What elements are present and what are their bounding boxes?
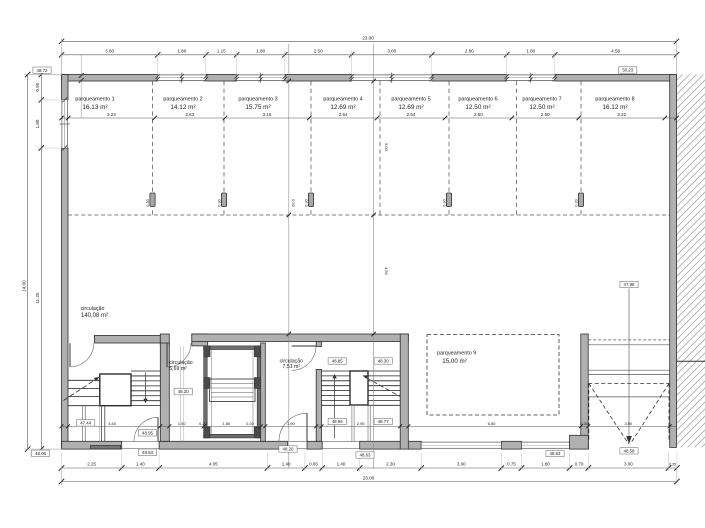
svg-text:23.00: 23.00 [362, 35, 374, 40]
svg-text:1.15: 1.15 [217, 49, 226, 54]
svg-text:140,08 m²: 140,08 m² [81, 313, 108, 319]
svg-text:parqueamento 6: parqueamento 6 [458, 97, 497, 103]
svg-text:16.12 m²: 16.12 m² [602, 104, 627, 111]
svg-text:6.50: 6.50 [488, 421, 497, 426]
svg-text:2.80: 2.80 [465, 49, 474, 54]
svg-text:2.30: 2.30 [386, 462, 395, 467]
svg-text:48.72: 48.72 [37, 68, 49, 73]
svg-text:23.00: 23.00 [363, 476, 375, 481]
svg-text:48.20: 48.20 [178, 389, 190, 394]
svg-text:16.13 m²: 16.13 m² [82, 104, 107, 111]
svg-text:47.44: 47.44 [80, 421, 92, 426]
svg-text:1.40: 1.40 [337, 462, 346, 467]
svg-text:12.69 m²: 12.69 m² [398, 104, 423, 111]
svg-text:14.12 m²: 14.12 m² [170, 104, 195, 111]
svg-text:2.25: 2.25 [87, 462, 96, 467]
svg-text:parqueamento 2: parqueamento 2 [163, 97, 202, 103]
svg-text:3.00: 3.00 [625, 421, 634, 426]
svg-text:1.80: 1.80 [35, 119, 40, 128]
svg-text:12.69 m²: 12.69 m² [330, 104, 355, 111]
svg-text:circulação: circulação [81, 306, 105, 312]
svg-text:1.80: 1.80 [256, 49, 265, 54]
svg-text:15,00 m²: 15,00 m² [442, 358, 466, 365]
svg-text:48.96: 48.96 [332, 419, 344, 424]
svg-text:12.50 m²: 12.50 m² [529, 104, 554, 111]
svg-text:parqueamento 8: parqueamento 8 [595, 97, 634, 103]
svg-text:4.05: 4.05 [209, 462, 218, 467]
svg-text:0.20: 0.20 [199, 421, 208, 426]
svg-text:3.00: 3.00 [624, 462, 633, 467]
svg-text:48.06: 48.06 [35, 451, 47, 456]
svg-text:47.98: 47.98 [624, 282, 636, 287]
svg-text:48.58: 48.58 [624, 448, 636, 453]
svg-text:3.45: 3.45 [108, 421, 117, 426]
svg-text:parqueamento 1: parqueamento 1 [75, 97, 114, 103]
svg-text:parqueamento 3: parqueamento 3 [238, 97, 277, 103]
svg-text:0.30: 0.30 [291, 199, 296, 208]
svg-text:0.30: 0.30 [218, 199, 222, 206]
svg-text:1.90: 1.90 [287, 421, 296, 426]
svg-text:11.25: 11.25 [35, 292, 40, 303]
svg-text:3.60: 3.60 [105, 49, 114, 54]
svg-text:15.75 m²: 15.75 m² [245, 104, 270, 111]
svg-text:1.40: 1.40 [136, 462, 145, 467]
svg-text:3.00: 3.00 [387, 49, 396, 54]
svg-text:50.23: 50.23 [622, 68, 634, 73]
svg-text:0.30: 0.30 [146, 199, 150, 206]
svg-text:4.58: 4.58 [611, 49, 620, 54]
svg-text:48.63: 48.63 [142, 450, 154, 455]
svg-text:5.00: 5.00 [384, 143, 389, 152]
svg-text:parqueamento 7: parqueamento 7 [522, 97, 561, 103]
svg-text:0.30: 0.30 [443, 199, 447, 206]
svg-text:1.80: 1.80 [526, 49, 535, 54]
svg-text:3.23: 3.23 [107, 112, 116, 117]
svg-text:2.63: 2.63 [185, 112, 194, 117]
svg-text:2.54: 2.54 [407, 112, 416, 117]
svg-text:0.20: 0.20 [246, 421, 255, 426]
svg-text:1.80: 1.80 [541, 462, 550, 467]
svg-text:3.22: 3.22 [617, 112, 626, 117]
svg-text:parqueamento 5: parqueamento 5 [391, 97, 430, 103]
svg-text:3.15: 3.15 [263, 112, 272, 117]
svg-text:1.50: 1.50 [178, 421, 187, 426]
svg-text:48.63: 48.63 [360, 453, 372, 458]
svg-text:0.30: 0.30 [581, 421, 590, 426]
svg-text:48.95: 48.95 [142, 430, 154, 435]
svg-text:12.50 m²: 12.50 m² [465, 104, 490, 111]
svg-text:0.70: 0.70 [575, 462, 584, 467]
svg-text:0.30: 0.30 [575, 199, 579, 206]
svg-text:parqueamento 9: parqueamento 9 [437, 350, 476, 356]
svg-text:0.65: 0.65 [309, 462, 318, 467]
svg-text:48.63: 48.63 [550, 451, 562, 456]
svg-text:48.30: 48.30 [378, 359, 390, 364]
svg-text:1.80: 1.80 [222, 421, 231, 426]
svg-text:48.77: 48.77 [378, 419, 390, 424]
svg-text:0.35: 0.35 [669, 463, 676, 467]
svg-text:48.85: 48.85 [332, 359, 344, 364]
svg-text:0.75: 0.75 [507, 462, 516, 467]
svg-text:3.00: 3.00 [457, 462, 466, 467]
svg-text:1.40: 1.40 [282, 462, 291, 467]
svg-text:2.50: 2.50 [474, 112, 483, 117]
svg-text:2.50: 2.50 [541, 112, 550, 117]
svg-text:7,51 m²: 7,51 m² [283, 364, 301, 370]
svg-text:2.54: 2.54 [339, 112, 348, 117]
svg-text:14.00: 14.00 [22, 280, 27, 292]
svg-text:parqueamento 4: parqueamento 4 [323, 97, 362, 103]
svg-text:2.50: 2.50 [314, 49, 323, 54]
svg-text:4.50: 4.50 [384, 267, 389, 276]
svg-text:2.95: 2.95 [357, 421, 366, 426]
svg-text:1.80: 1.80 [177, 49, 186, 54]
svg-text:5,69 m²: 5,69 m² [169, 366, 187, 372]
svg-text:0.30: 0.30 [305, 199, 309, 206]
svg-text:0.95: 0.95 [35, 82, 40, 91]
svg-text:48.20: 48.20 [283, 447, 295, 452]
